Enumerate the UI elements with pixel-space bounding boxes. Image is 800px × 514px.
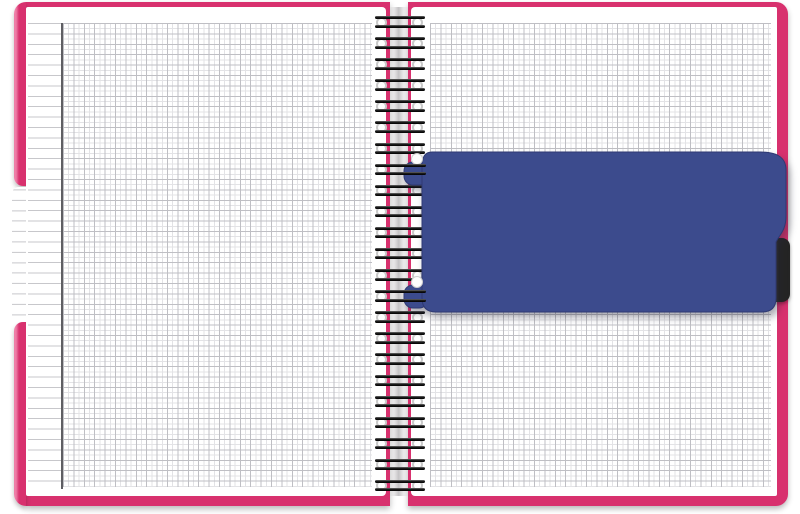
divider-hook-notch-upper: [412, 154, 423, 165]
divider-hook-notch-lower: [412, 277, 423, 288]
notebook-photo: [0, 0, 800, 514]
divider-body: [422, 152, 786, 312]
divider-blue: [0, 0, 800, 514]
